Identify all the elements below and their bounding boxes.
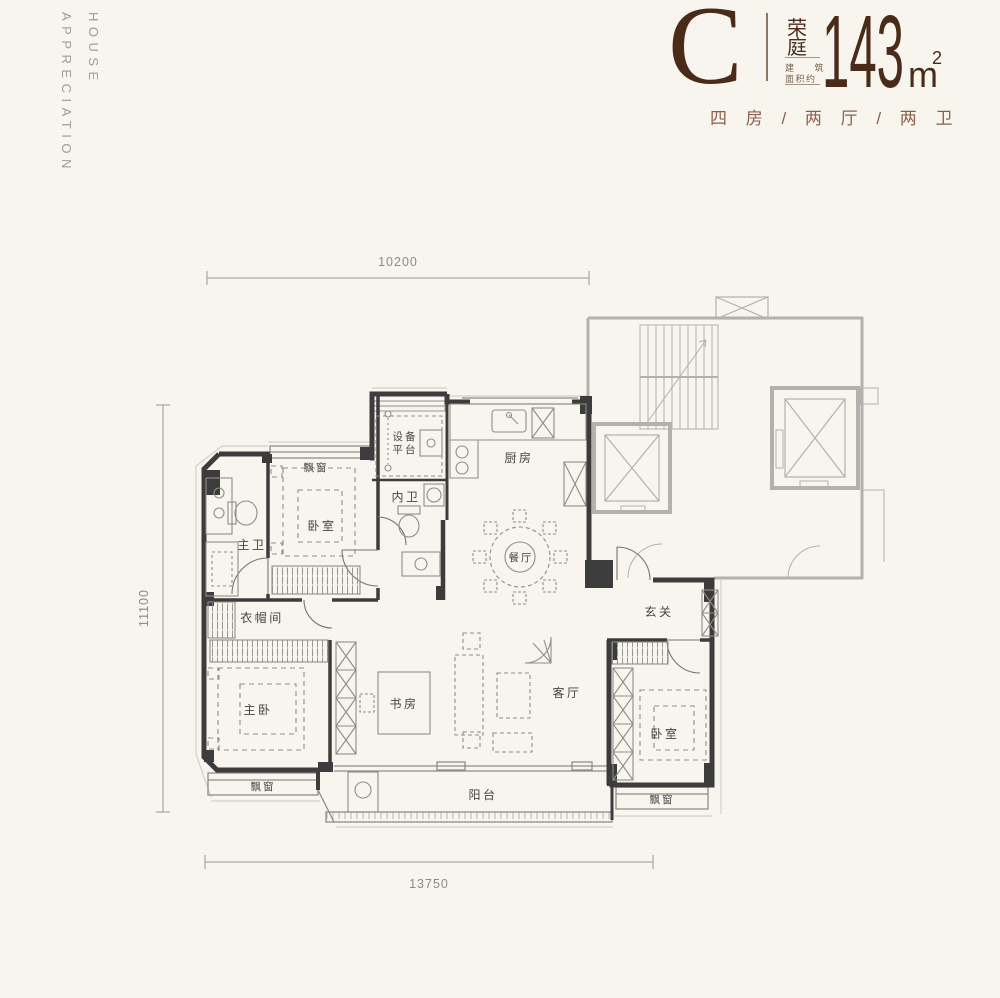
room-label-bedroom-right: 卧室 [650, 726, 679, 741]
dim-left-label: 11100 [137, 589, 151, 627]
equipment-grille [374, 396, 445, 411]
master-bath-fixtures [206, 478, 257, 596]
dimension-annotations [156, 271, 653, 869]
living-fan-decor [525, 637, 551, 663]
common-core [588, 297, 884, 578]
room-label-equip-line1: 设备 [393, 430, 418, 443]
room-label-bay-top: 飘窗 [304, 461, 329, 474]
floor-plan: 10200 11100 13750 [0, 0, 1000, 998]
room-label-cloakroom: 衣帽间 [240, 610, 284, 625]
bed-top-bedroom [271, 466, 355, 556]
room-label-dining: 餐厅 [509, 551, 534, 564]
room-label-study: 书房 [389, 696, 418, 711]
room-label-bedroom-top: 卧室 [307, 518, 336, 533]
dim-top-label: 10200 [378, 255, 418, 269]
room-label-inner-bath: 内卫 [391, 490, 420, 504]
vent-shaft [716, 297, 768, 319]
floorplan-page: HOUSE APPRECIATION C 荣 庭 建 筑 面积约 143 m 2… [0, 0, 1000, 998]
room-label-bay-left: 飘窗 [251, 780, 276, 793]
contour-lines [196, 388, 721, 827]
stairwell [640, 325, 718, 429]
furniture [206, 404, 718, 812]
bedroom-right-furniture [612, 642, 706, 780]
dim-bottom-label: 13750 [409, 877, 449, 891]
room-label-foyer: 玄关 [644, 604, 673, 619]
room-label-equip-line2: 平台 [393, 443, 418, 456]
room-label-bay-right: 飘窗 [650, 793, 675, 806]
room-label-master-bedroom: 主卧 [243, 703, 272, 717]
room-label-master-bath: 主卫 [237, 538, 266, 552]
room-label-balcony: 阳台 [468, 787, 497, 802]
elevator-right [772, 388, 858, 488]
wardrobe-top-bedroom [272, 566, 360, 594]
room-label-living: 客厅 [552, 685, 581, 700]
balcony-washer [348, 772, 378, 812]
room-label-kitchen: 厨房 [504, 450, 533, 465]
elevator-left [594, 424, 670, 512]
living-furniture [455, 633, 532, 752]
